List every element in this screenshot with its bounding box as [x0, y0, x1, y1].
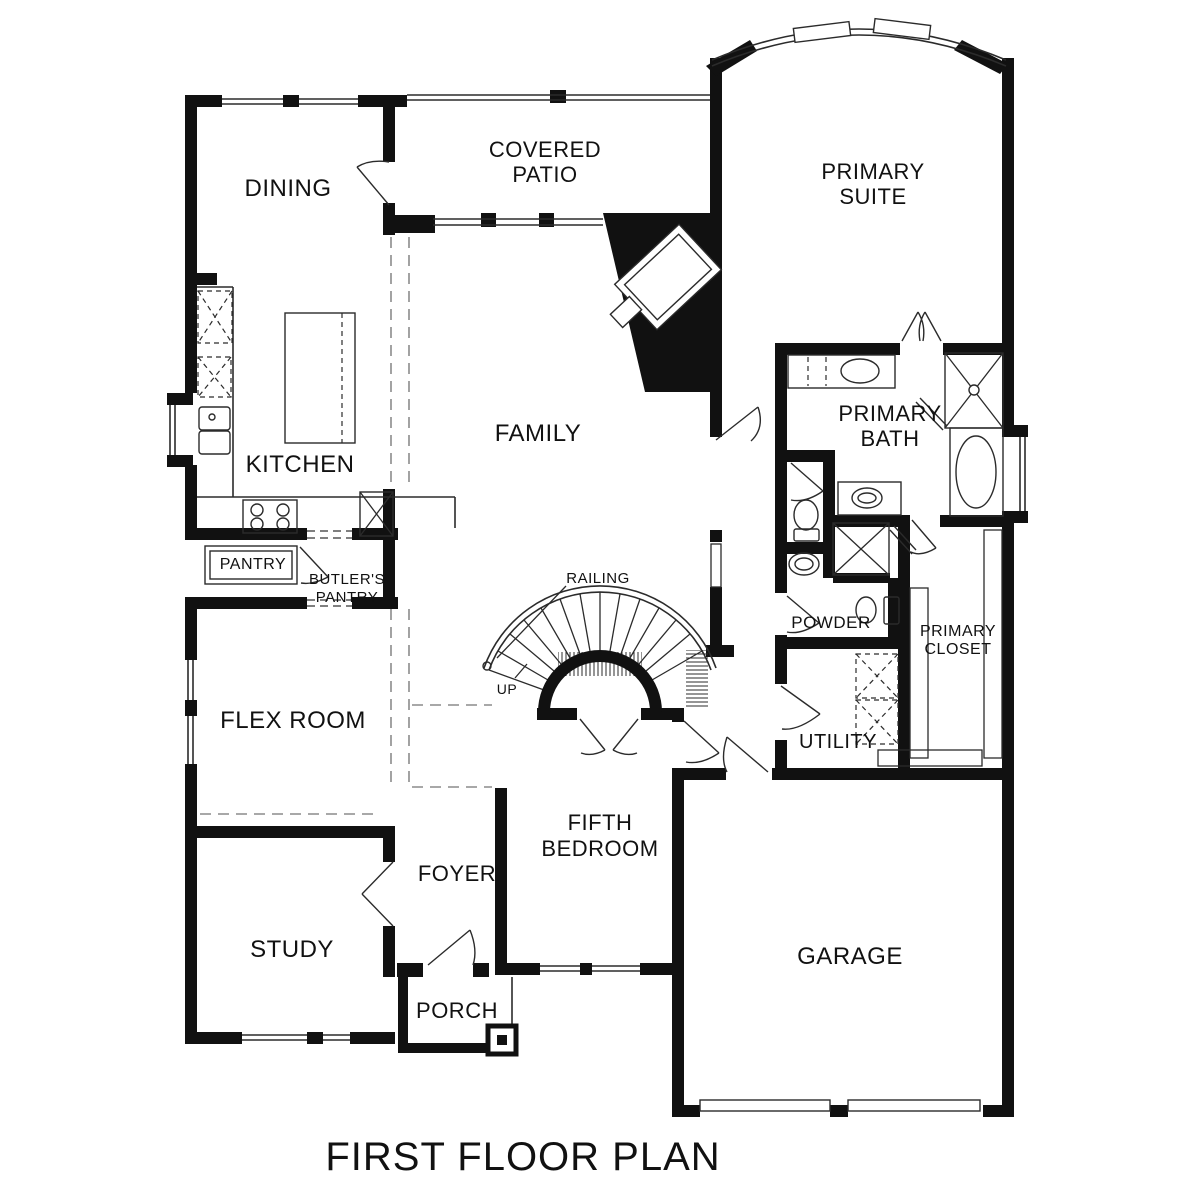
utility-door [781, 686, 820, 729]
primary-suite-double-door [902, 312, 941, 341]
water-closet-door [791, 463, 823, 501]
garage-entry-door [724, 737, 769, 772]
primary-tub [950, 428, 1003, 516]
plan-title: FIRST FLOOR PLAN [325, 1135, 720, 1179]
bedroom-double-door [580, 719, 638, 754]
room-label-butlers-pantry-1: BUTLER'S [309, 571, 385, 588]
room-label-family: FAMILY [495, 420, 582, 447]
powder-sink [789, 553, 819, 575]
room-label-primary-closet-1: PRIMARY [920, 623, 996, 640]
floor-plan-page: DINING COVERED PATIO PRIMARY SUITE FAMIL… [0, 0, 1200, 1200]
floor-plan-drawing: DINING COVERED PATIO PRIMARY SUITE FAMIL… [0, 0, 1200, 1200]
room-label-foyer: FOYER [418, 861, 496, 886]
stair-winder-hatch [686, 650, 708, 707]
label-up: UP [497, 681, 517, 697]
primary-vanity-1 [788, 355, 895, 388]
family-hall-door [716, 407, 760, 441]
room-label-primary-suite-1: PRIMARY [821, 159, 924, 184]
bay-window-frame-left [793, 22, 850, 43]
room-label-porch: PORCH [416, 998, 498, 1023]
dining-patio-door [357, 161, 389, 205]
curved-staircase [483, 586, 716, 712]
room-label-powder: POWDER [791, 613, 871, 632]
room-label-dining: DINING [245, 175, 332, 202]
bedroom-hall-door [684, 721, 719, 763]
room-label-butlers-pantry-2: PANTRY [316, 589, 378, 606]
room-label-garage: GARAGE [797, 943, 903, 970]
label-railing: RAILING [566, 570, 630, 587]
shower-2 [833, 523, 889, 575]
primary-shower [945, 353, 1003, 428]
room-label-pantry: PANTRY [220, 556, 286, 573]
room-label-study: STUDY [250, 936, 334, 963]
room-label-primary-closet-2: CLOSET [924, 641, 991, 658]
room-label-primary-bath-1: PRIMARY [838, 401, 941, 426]
room-label-fifth-bedroom-1: FIFTH [568, 810, 633, 835]
primary-vanity-2 [838, 482, 901, 515]
study-door [362, 862, 393, 926]
room-label-utility: UTILITY [799, 731, 877, 753]
room-label-fifth-bedroom-2: BEDROOM [541, 836, 658, 861]
room-label-covered-patio-2: PATIO [512, 162, 577, 187]
porch-column [488, 1026, 516, 1054]
room-label-covered-patio-1: COVERED [489, 137, 601, 162]
room-label-primary-bath-2: BATH [860, 426, 919, 451]
kitchen-island [285, 313, 355, 443]
room-label-flex-room: FLEX ROOM [220, 707, 366, 734]
front-door [428, 930, 475, 965]
room-label-primary-suite-2: SUITE [839, 184, 906, 209]
kitchen-sink [199, 407, 230, 454]
corner-fireplace [603, 213, 722, 392]
water-closet-toilet [794, 500, 819, 541]
room-label-kitchen: KITCHEN [246, 451, 355, 478]
refrigerator-cabinets [198, 291, 232, 397]
